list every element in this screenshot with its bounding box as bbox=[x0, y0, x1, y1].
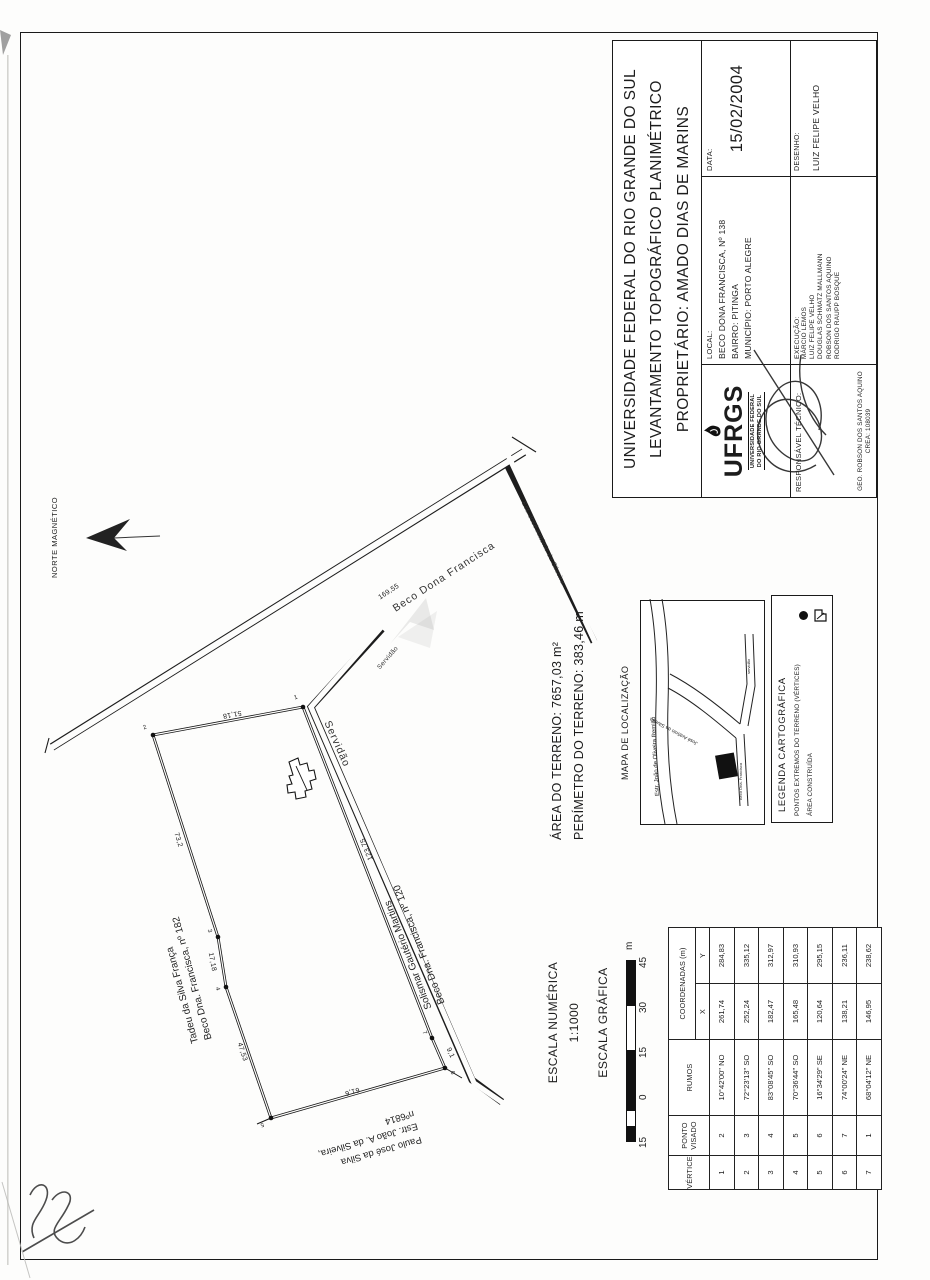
cell-rumos: 70°36'44" SO bbox=[783, 1040, 808, 1116]
execucao-cell: EXECUÇÃO: MÁRCIO LEMOS LUIZ FELIPE VELHO… bbox=[790, 177, 876, 365]
execucao-name-3: DOUGLAS SCHMATZ MALLMANN bbox=[817, 182, 825, 359]
table-row: 3 4 83°08'45" SO 182,47 312,97 bbox=[759, 928, 784, 1190]
cell-vertice: 4 bbox=[783, 1156, 808, 1190]
cell-y: 236,11 bbox=[832, 928, 857, 984]
cell-vertice: 7 bbox=[857, 1156, 882, 1190]
map-road-beco-label: Beco Dna. Francisca bbox=[738, 763, 743, 800]
execucao-name-5: RODRIGO RAUPP BOSQUE bbox=[834, 182, 842, 359]
cell-ponto-visado: 6 bbox=[808, 1116, 833, 1156]
cell-rumos: 68°04'12" NE bbox=[857, 1040, 882, 1116]
cell-y: 312,97 bbox=[759, 928, 784, 984]
responsavel-crea: CREA: 108039 bbox=[865, 365, 873, 497]
header-ponto: PONTO bbox=[680, 1122, 689, 1148]
cell-vertice: 6 bbox=[832, 1156, 857, 1190]
numeric-scale-value: 1:1000 bbox=[567, 935, 581, 1110]
header-ponto-visado: PONTO VISADO bbox=[669, 1116, 710, 1156]
cell-rumos: 83°08'45" SO bbox=[759, 1040, 784, 1116]
map-road-servidao-label: servidão bbox=[746, 659, 751, 674]
scale-tick-0: 0 bbox=[638, 1094, 649, 1100]
map-terrain-marker bbox=[715, 752, 738, 779]
cell-x: 138,21 bbox=[832, 984, 857, 1040]
cell-y: 335,12 bbox=[734, 928, 759, 984]
cell-x: 182,47 bbox=[759, 984, 784, 1040]
map-title: MAPA DE LOCALIZAÇÃO bbox=[620, 650, 636, 780]
header-visado: VISADO bbox=[689, 1121, 698, 1149]
cell-vertice: 5 bbox=[808, 1156, 833, 1190]
desenho-label: DESENHO: bbox=[794, 46, 801, 171]
header-coordenadas: COORDENADAS (m) bbox=[669, 928, 696, 1040]
scale-tick-15: 15 bbox=[638, 1047, 649, 1058]
cell-x: 120,64 bbox=[808, 984, 833, 1040]
graphic-scale-bar: 15 0 15 30 45 m bbox=[624, 928, 662, 1150]
table-row: 4 5 70°36'44" SO 165,48 310,93 bbox=[783, 928, 808, 1190]
cell-vertice: 2 bbox=[734, 1156, 759, 1190]
responsavel-cell: RESPONSÁVEL TÉCNICO: GEO. ROBSON DOS SAN… bbox=[790, 365, 876, 497]
cell-ponto-visado: 2 bbox=[710, 1116, 735, 1156]
cell-x: 261,74 bbox=[710, 984, 735, 1040]
table-row: 1 2 10°42'00" NO 261,74 284,83 bbox=[710, 928, 735, 1190]
terrain-perimeter: PERÍMETRO DO TERRENO: 383,46 m bbox=[572, 585, 586, 840]
table-row: 7 1 68°04'12" NE 146,95 238,62 bbox=[857, 928, 882, 1190]
legend-box: LEGENDA CARTOGRÁFICA PONTOS EXTREMOS DO … bbox=[771, 595, 833, 823]
cell-x: 146,95 bbox=[857, 984, 882, 1040]
header-vertice: VÉRTICE bbox=[669, 1156, 710, 1190]
coordinates-table: VÉRTICE PONTO VISADO RUMOS COORDENADAS (… bbox=[668, 927, 882, 1190]
execucao-name-2: LUIZ FELIPE VELHO bbox=[809, 182, 817, 359]
header-x: X bbox=[696, 984, 710, 1040]
built-area-icon bbox=[814, 608, 827, 622]
graphic-scale-label: ESCALA GRÁFICA bbox=[596, 940, 616, 1105]
legend-item-area: ÁREA CONSTRUÍDA bbox=[807, 596, 814, 816]
cell-y: 295,15 bbox=[808, 928, 833, 984]
header-y: Y bbox=[696, 928, 710, 984]
cell-rumos: 10°42'00" NO bbox=[710, 1040, 735, 1116]
handwritten-scribble bbox=[2, 1182, 94, 1278]
numeric-scale-label: ESCALA NUMÉRICA bbox=[546, 935, 560, 1110]
cell-x: 252,24 bbox=[734, 984, 759, 1040]
title-owner: PROPRIETÁRIO: AMADO DIAS DE MARINS bbox=[675, 41, 693, 497]
date-value: 15/02/2004 bbox=[728, 46, 747, 171]
scale-tick-45: 45 bbox=[638, 957, 649, 968]
execucao-name-1: MÁRCIO LEMOS bbox=[801, 182, 809, 359]
cell-rumos: 72°23'13" SO bbox=[734, 1040, 759, 1116]
cell-ponto-visado: 5 bbox=[783, 1116, 808, 1156]
scale-tick-30: 30 bbox=[638, 1002, 649, 1013]
date-cell: DATA: 15/02/2004 bbox=[702, 41, 790, 177]
north-arrow bbox=[86, 519, 160, 551]
cell-vertice: 1 bbox=[710, 1156, 735, 1190]
cell-y: 284,83 bbox=[710, 928, 735, 984]
coordinates-table-block: VÉRTICE PONTO VISADO RUMOS COORDENADAS (… bbox=[668, 928, 877, 1190]
scale-unit: m bbox=[624, 942, 635, 950]
header-rumos: RUMOS bbox=[669, 1040, 710, 1116]
area-perimeter-block: ÁREA DO TERRENO: 7657,03 m² PERÍMETRO DO… bbox=[550, 585, 602, 840]
cell-ponto-visado: 1 bbox=[857, 1116, 882, 1156]
execucao-name-4: ROBSON DOS SANTOS AQUINO bbox=[826, 182, 834, 359]
cell-ponto-visado: 3 bbox=[734, 1116, 759, 1156]
desenho-cell: DESENHO: LUIZ FELIPE VELHO bbox=[790, 41, 876, 177]
numeric-scale-block: ESCALA NUMÉRICA 1:1000 bbox=[546, 935, 592, 1110]
cell-ponto-visado: 4 bbox=[759, 1116, 784, 1156]
date-label: DATA: bbox=[705, 46, 714, 171]
desenho-value: LUIZ FELIPE VELHO bbox=[811, 46, 821, 171]
scale-tick-15l: 15 bbox=[638, 1137, 649, 1148]
cell-y: 310,93 bbox=[783, 928, 808, 984]
scan-corner-mark bbox=[0, 30, 11, 55]
scanned-survey-sheet: Beco Dona Francisca 169,55 Servidão Serv… bbox=[0, 0, 930, 1280]
cell-rumos: 74°00'24" NE bbox=[832, 1040, 857, 1116]
responsavel-name-block: GEO. ROBSON DOS SANTOS AQUINO CREA: 1080… bbox=[857, 365, 873, 497]
table-row: 2 3 72°23'13" SO 252,24 335,12 bbox=[734, 928, 759, 1190]
cell-rumos: 16°34'29" SE bbox=[808, 1040, 833, 1116]
cell-y: 238,62 bbox=[857, 928, 882, 984]
scale-bar bbox=[626, 960, 636, 1142]
cell-x: 165,48 bbox=[783, 984, 808, 1040]
title-university: UNIVERSIDADE FEDERAL DO RIO GRANDE DO SU… bbox=[622, 41, 640, 497]
localization-map-box: Estr. João de Oliveira Remião José Antôn… bbox=[640, 600, 765, 825]
legend-title: LEGENDA CARTOGRÁFICA bbox=[777, 596, 788, 812]
title-survey-type: LEVANTAMENTO TOPOGRÁFICO PLANIMÉTRICO bbox=[648, 41, 666, 497]
terrain-area: ÁREA DO TERRENO: 7657,03 m² bbox=[550, 585, 564, 840]
title-block: UNIVERSIDADE FEDERAL DO RIO GRANDE DO SU… bbox=[612, 40, 877, 498]
responsavel-name: GEO. ROBSON DOS SANTOS AQUINO bbox=[857, 365, 865, 497]
scan-edge-line bbox=[7, 55, 9, 1265]
table-row: 6 7 74°00'24" NE 138,21 236,11 bbox=[832, 928, 857, 1190]
vertex-point-icon bbox=[799, 611, 808, 620]
cell-vertice: 3 bbox=[759, 1156, 784, 1190]
north-label: NORTE MAGNÉTICO bbox=[50, 482, 64, 578]
execucao-label: EXECUÇÃO: bbox=[794, 182, 801, 359]
cell-ponto-visado: 7 bbox=[832, 1116, 857, 1156]
legend-item-vertices: PONTOS EXTREMOS DO TERRENO (VÉRTICES) bbox=[794, 626, 801, 816]
table-row: 5 6 16°34'29" SE 120,64 295,15 bbox=[808, 928, 833, 1190]
title-lines: UNIVERSIDADE FEDERAL DO RIO GRANDE DO SU… bbox=[613, 41, 702, 497]
